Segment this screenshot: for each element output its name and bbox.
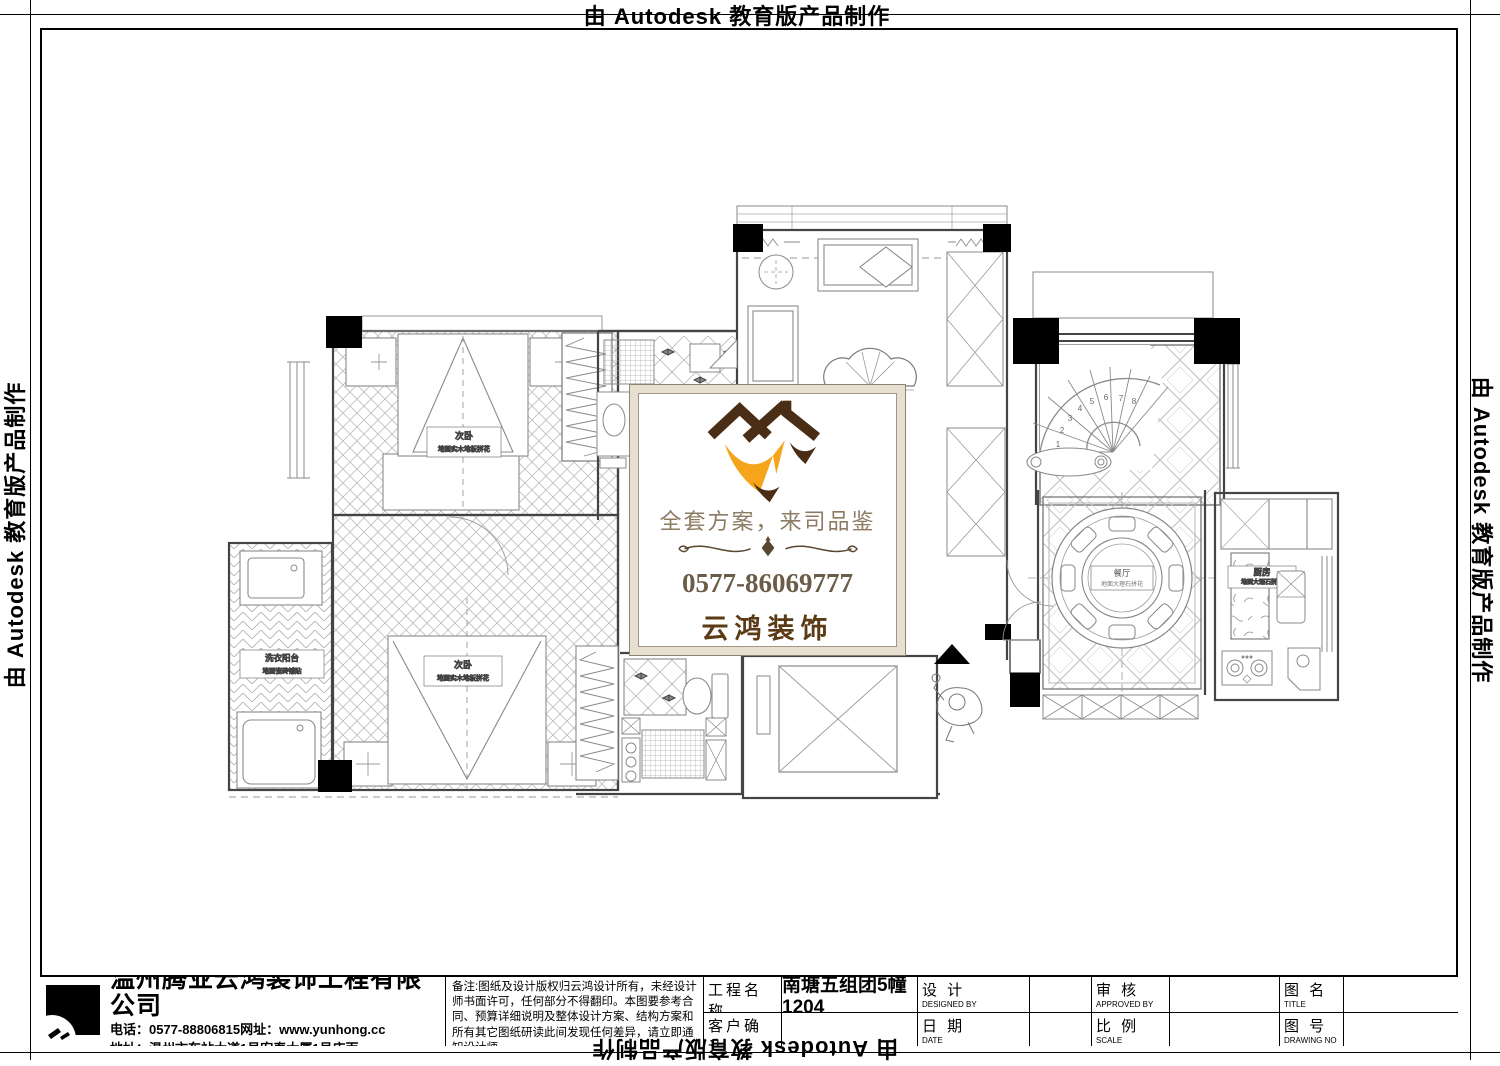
label-laundry-floor: 地面瓷砖铺贴 — [263, 666, 303, 675]
company-address: 地址：温州市车站大道1号宏泰大厦1号店面 — [110, 1038, 441, 1046]
label-kitchen-name: 厨房 — [1253, 567, 1270, 577]
label-dining-name: 餐厅 — [1113, 568, 1131, 578]
field-drawingno-value — [1343, 1012, 1458, 1046]
stair-step-1: 1 — [1056, 440, 1061, 449]
stair-step-3: 3 — [1068, 414, 1073, 423]
field-drawingno-label: 图 号DRAWING NO — [1279, 1012, 1343, 1046]
ornament-divider-icon — [663, 536, 873, 562]
field-approved-label: 审 核APPROVED BY — [1091, 977, 1169, 1012]
autodesk-watermark-right: 由 Autodesk 教育版产品制作 — [1467, 377, 1499, 683]
card-slogan: 全套方案，来司品鉴 — [659, 504, 875, 536]
drawing-sheet: { "border": { "watermark_text": "由 Autod… — [0, 0, 1500, 1060]
label-bedroom-top-name: 次卧 — [455, 430, 473, 441]
entry-area — [932, 560, 1053, 742]
autodesk-watermark-top: 由 Autodesk 教育版产品制作 — [584, 0, 890, 31]
label-bedroom-bottom-floor: 地面实木地板拼花 — [437, 673, 490, 682]
stove-icon — [1222, 651, 1272, 685]
label-bedroom-top-floor: 地面实木地板拼花 — [438, 444, 491, 453]
field-project-value: 南塘五组团5幢1204 — [781, 977, 917, 1012]
elevator-shaft — [743, 656, 937, 798]
stair-step-8: 8 — [1132, 397, 1137, 406]
field-date-value — [1029, 1012, 1091, 1046]
stair-step-5: 5 — [1090, 397, 1095, 406]
field-designed-value — [1029, 977, 1091, 1012]
company-name: 温州腾业云鸿装饰工程有限公司 — [110, 977, 441, 1019]
field-scale-value — [1169, 1012, 1279, 1046]
person-figure — [932, 674, 982, 742]
autodesk-watermark-left: 由 Autodesk 教育版产品制作 — [0, 382, 30, 688]
company-phone: 电话：0577-88806815网址：www.yunhong.cc — [110, 1019, 441, 1038]
card-brand: 云鸿装饰 — [702, 607, 834, 646]
toilet-icon — [683, 674, 728, 718]
field-approved-value — [1169, 977, 1279, 1012]
room-kitchen: 厨房 地面大理石拼花 — [1215, 493, 1338, 700]
company-cell: 温州腾业云鸿装饰工程有限公司 电话：0577-88806815网址：www.yu… — [40, 977, 445, 1046]
card-phone: 0577-86069777 — [682, 568, 853, 599]
label-dining-floor: 地面大理石拼花 — [1101, 580, 1143, 588]
field-designed-label: 设 计DESIGNED BY — [917, 977, 1029, 1012]
field-title-label: 图 名TITLE — [1279, 977, 1343, 1012]
field-scale-label: 比 例SCALE — [1091, 1012, 1169, 1046]
autodesk-watermark-bottom: 由 Autodesk 教育版产品制作 — [592, 1034, 898, 1066]
company-logo-icon — [44, 983, 102, 1041]
room-dining: 餐厅 地面大理石拼花 — [1028, 490, 1215, 719]
stair-step-2: 2 — [1060, 426, 1065, 435]
label-laundry-name: 洗衣阳台 — [265, 653, 299, 663]
stair-step-7: 7 — [1119, 394, 1124, 403]
room-laundry: 洗衣阳台 地面瓷砖铺贴 — [229, 543, 332, 790]
brand-watermark-card: 全套方案，来司品鉴 0577-86069777 云鸿装饰 — [629, 384, 906, 656]
label-bedroom-bottom-name: 次卧 — [454, 659, 472, 670]
field-date-label: 日 期DATE — [917, 1012, 1029, 1046]
stair-step-6: 6 — [1104, 393, 1109, 402]
field-project-label: 工程名称PROJECT — [703, 977, 781, 1012]
brand-logo-icon — [688, 394, 848, 502]
entry-arrow-icon — [934, 644, 970, 664]
stair-step-4: 4 — [1078, 404, 1083, 413]
field-title-value — [1343, 977, 1458, 1012]
